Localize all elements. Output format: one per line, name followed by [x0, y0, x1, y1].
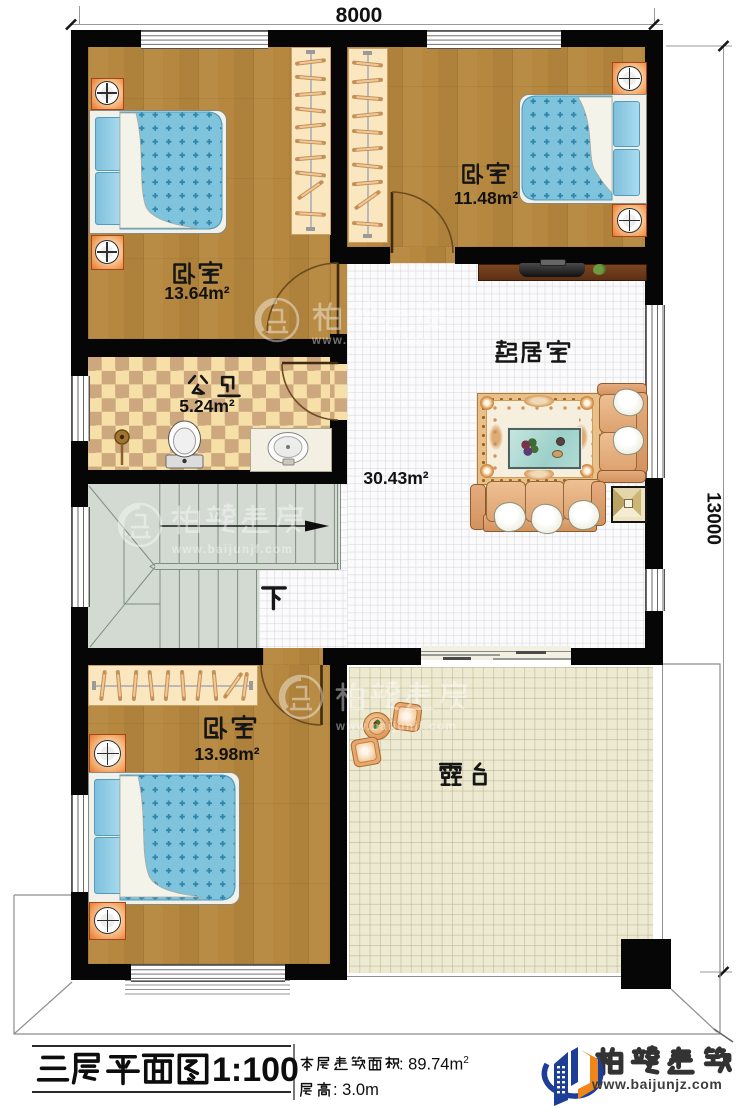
svg-text:www.baijunjf.com: www.baijunjf.com	[311, 335, 433, 347]
svg-text:www.baijunjf.com: www.baijunjf.com	[171, 544, 293, 556]
svg-text:www.baijunjf.com: www.baijunjf.com	[335, 721, 457, 733]
